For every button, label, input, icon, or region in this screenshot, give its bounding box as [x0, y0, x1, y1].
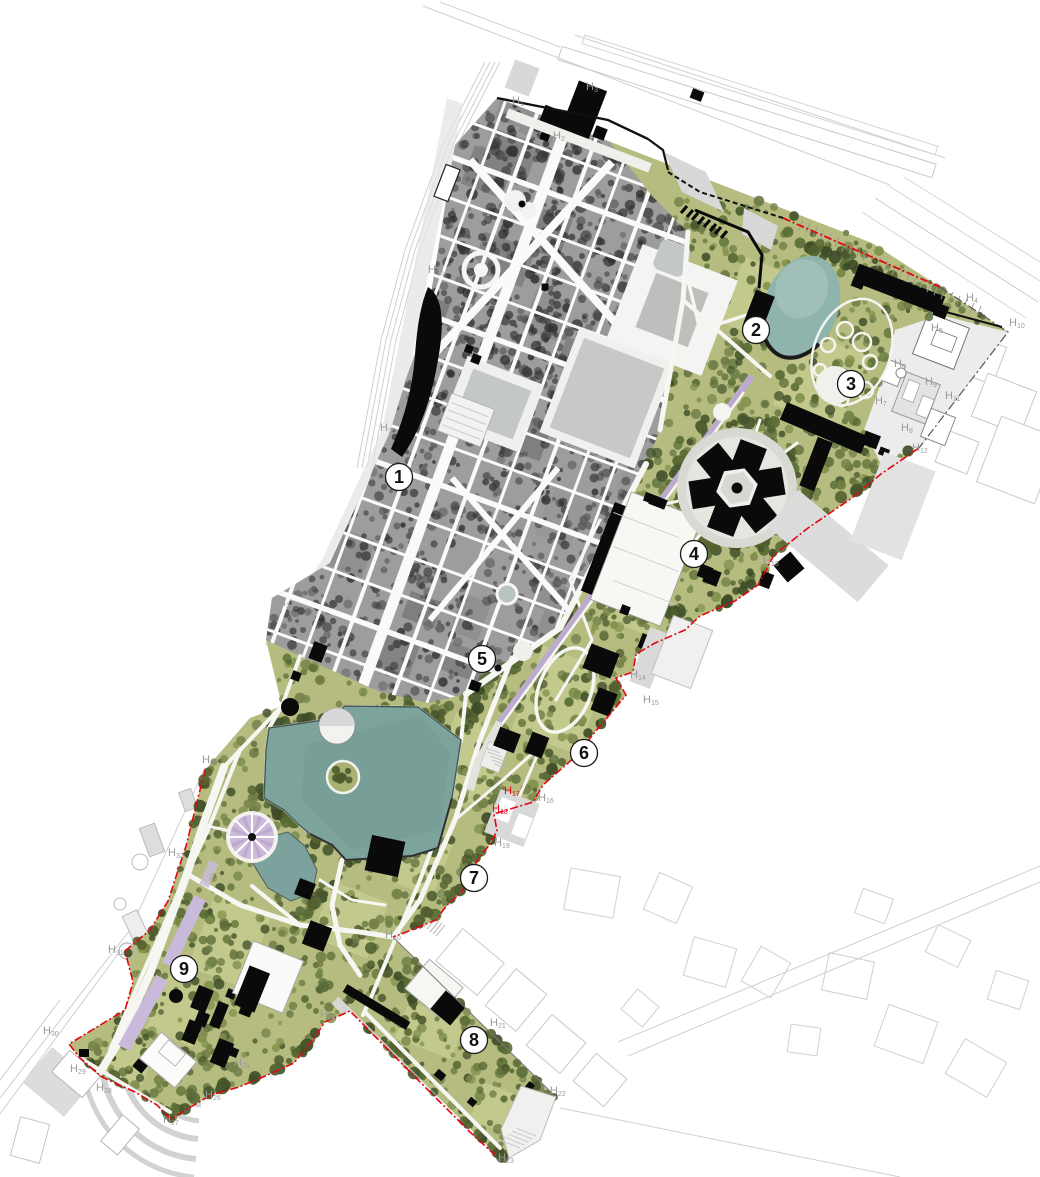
svg-text:8: 8 — [469, 1030, 479, 1050]
svg-text:3: 3 — [846, 374, 856, 394]
svg-text:7: 7 — [469, 868, 479, 888]
svg-text:2: 2 — [751, 320, 761, 340]
svg-text:4: 4 — [689, 544, 699, 564]
svg-text:1: 1 — [394, 467, 404, 487]
svg-text:6: 6 — [579, 743, 589, 763]
svg-text:9: 9 — [179, 959, 189, 979]
svg-text:5: 5 — [477, 649, 487, 669]
